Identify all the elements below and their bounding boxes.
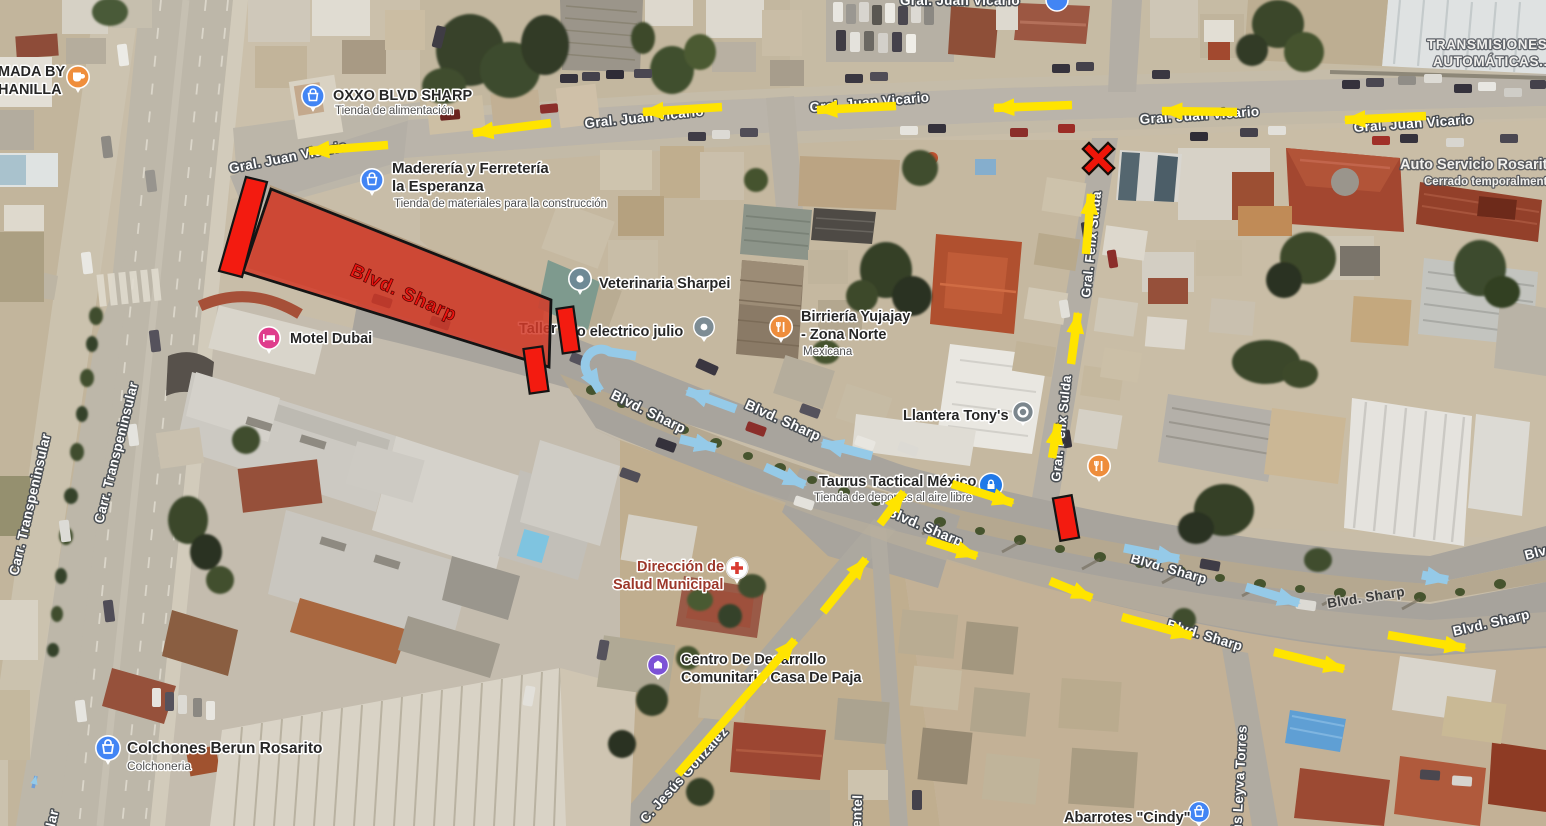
svg-text:- Zona Norte: - Zona Norte: [801, 327, 886, 343]
svg-text:Birriería Yujajay: Birriería Yujajay: [801, 309, 910, 325]
svg-text:la Esperanza: la Esperanza: [392, 178, 484, 195]
svg-text:TRANSMISIONES: TRANSMISIONES: [1427, 37, 1546, 52]
svg-text:Auto Servicio Rosarito: Auto Servicio Rosarito: [1400, 157, 1546, 173]
svg-text:MADA BY: MADA BY: [0, 64, 65, 80]
svg-text:Dirección de: Dirección de: [637, 559, 724, 575]
svg-text:Veterinaria Sharpei: Veterinaria Sharpei: [599, 276, 730, 292]
svg-text:Colchoneria: Colchoneria: [127, 759, 191, 773]
svg-text:Colchones Berun Rosarito: Colchones Berun Rosarito: [127, 740, 323, 757]
svg-text:Tienda de materiales para la c: Tienda de materiales para la construcció…: [394, 198, 607, 210]
svg-text:Abarrotes "Cindy": Abarrotes "Cindy": [1064, 810, 1191, 826]
svg-text:OXXO BLVD SHARP: OXXO BLVD SHARP: [333, 88, 472, 104]
svg-text:Cerrado temporalmente: Cerrado temporalmente: [1424, 176, 1546, 188]
svg-text:entel: entel: [849, 795, 865, 826]
svg-text:HANILLA: HANILLA: [0, 82, 62, 98]
svg-text:to electrico julio: to electrico julio: [572, 324, 683, 340]
svg-text:Gral. Juan Vicario: Gral. Juan Vicario: [900, 0, 1020, 8]
svg-text:Salud Municipal: Salud Municipal: [613, 577, 723, 593]
svg-text:Maderería y Ferretería: Maderería y Ferretería: [392, 160, 549, 177]
svg-text:Llantera Tony's: Llantera Tony's: [903, 408, 1009, 424]
svg-text:Tienda de alimentación: Tienda de alimentación: [335, 105, 453, 117]
svg-text:Motel Dubai: Motel Dubai: [290, 331, 372, 347]
svg-text:AUTOMÁTICAS...: AUTOMÁTICAS...: [1433, 54, 1546, 69]
svg-text:Mexicana: Mexicana: [803, 346, 853, 358]
svg-text:Centro De Desarrollo: Centro De Desarrollo: [681, 652, 826, 668]
